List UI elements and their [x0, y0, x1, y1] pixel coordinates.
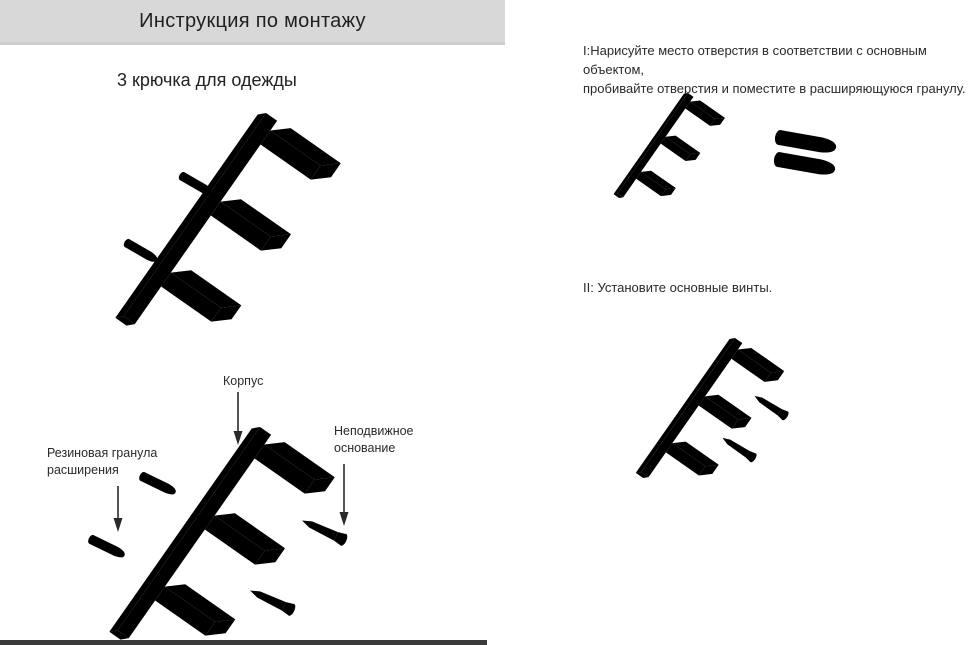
page-bottom-bar	[0, 640, 487, 645]
label-expansion-plug: Резиновая гранула расширения	[47, 445, 157, 479]
screw-icon	[247, 585, 296, 617]
page-title: Инструкция по монтажу	[139, 10, 366, 33]
hook-rail-drawing	[614, 91, 725, 222]
hook-rail-drawing	[636, 335, 785, 500]
down-arrow-icon	[231, 392, 245, 446]
label-body: Корпус	[223, 373, 263, 390]
label-fixed-base: Неподвижное основание	[334, 423, 414, 457]
wall-plug-icon	[773, 151, 837, 177]
diagram-step2	[615, 325, 900, 500]
wall-plug-icon	[122, 238, 159, 264]
diagram-rail-with-plugs	[55, 85, 375, 350]
hook-rail-drawing	[115, 108, 340, 350]
screw-icon	[720, 434, 758, 464]
step2-instruction: II: Установите основные винты.	[583, 278, 970, 297]
diagram-step1	[600, 88, 885, 228]
down-arrow-icon	[111, 486, 125, 534]
instruction-sheet: Инструкция по монтажу 3 крючка для одежд…	[0, 0, 970, 645]
wall-plug-icon	[774, 129, 838, 155]
down-arrow-icon	[337, 464, 351, 528]
header-bar: Инструкция по монтажу	[0, 0, 505, 45]
screw-icon	[752, 392, 790, 422]
wall-plug-icon	[87, 534, 127, 560]
